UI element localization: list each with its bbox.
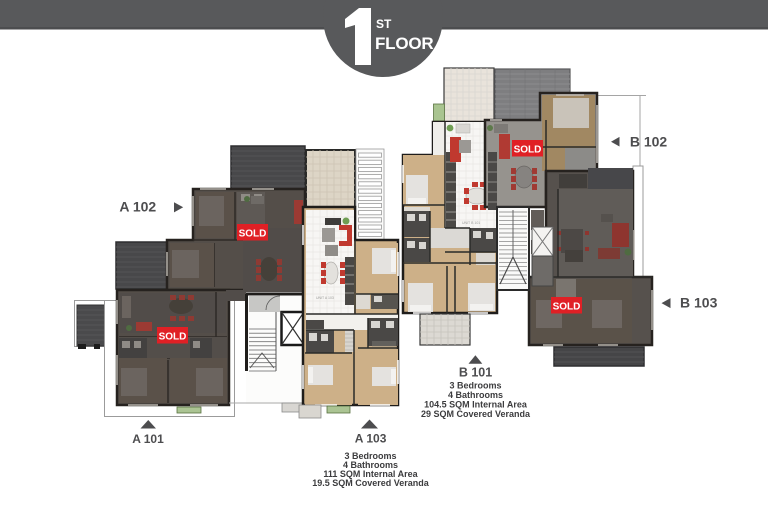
svg-text:B 103: B 103 [680, 295, 718, 311]
svg-text:SOLD: SOLD [514, 145, 542, 156]
svg-text:A 103: A 103 [355, 432, 387, 446]
svg-text:UNIT B 101: UNIT B 101 [462, 221, 480, 225]
svg-text:SOLD: SOLD [553, 302, 581, 313]
svg-text:UNIT A 103: UNIT A 103 [316, 296, 334, 300]
svg-text:4 Bathrooms: 4 Bathrooms [448, 390, 503, 400]
svg-text:A 101: A 101 [132, 432, 164, 446]
svg-text:SOLD: SOLD [159, 332, 187, 343]
svg-text:SOLD: SOLD [239, 229, 267, 240]
svg-text:FLOOR: FLOOR [375, 34, 434, 53]
svg-text:B 102: B 102 [630, 134, 668, 150]
svg-text:19.5 SQM Covered Veranda: 19.5 SQM Covered Veranda [312, 478, 430, 488]
svg-text:104.5 SQM Internal Area: 104.5 SQM Internal Area [424, 400, 528, 410]
svg-text:ST: ST [376, 17, 392, 31]
svg-text:3 Bedrooms: 3 Bedrooms [449, 381, 501, 391]
svg-text:29 SQM Covered Veranda: 29 SQM Covered Veranda [421, 409, 531, 419]
svg-text:B 101: B 101 [459, 366, 492, 380]
svg-text:A 102: A 102 [119, 199, 156, 215]
